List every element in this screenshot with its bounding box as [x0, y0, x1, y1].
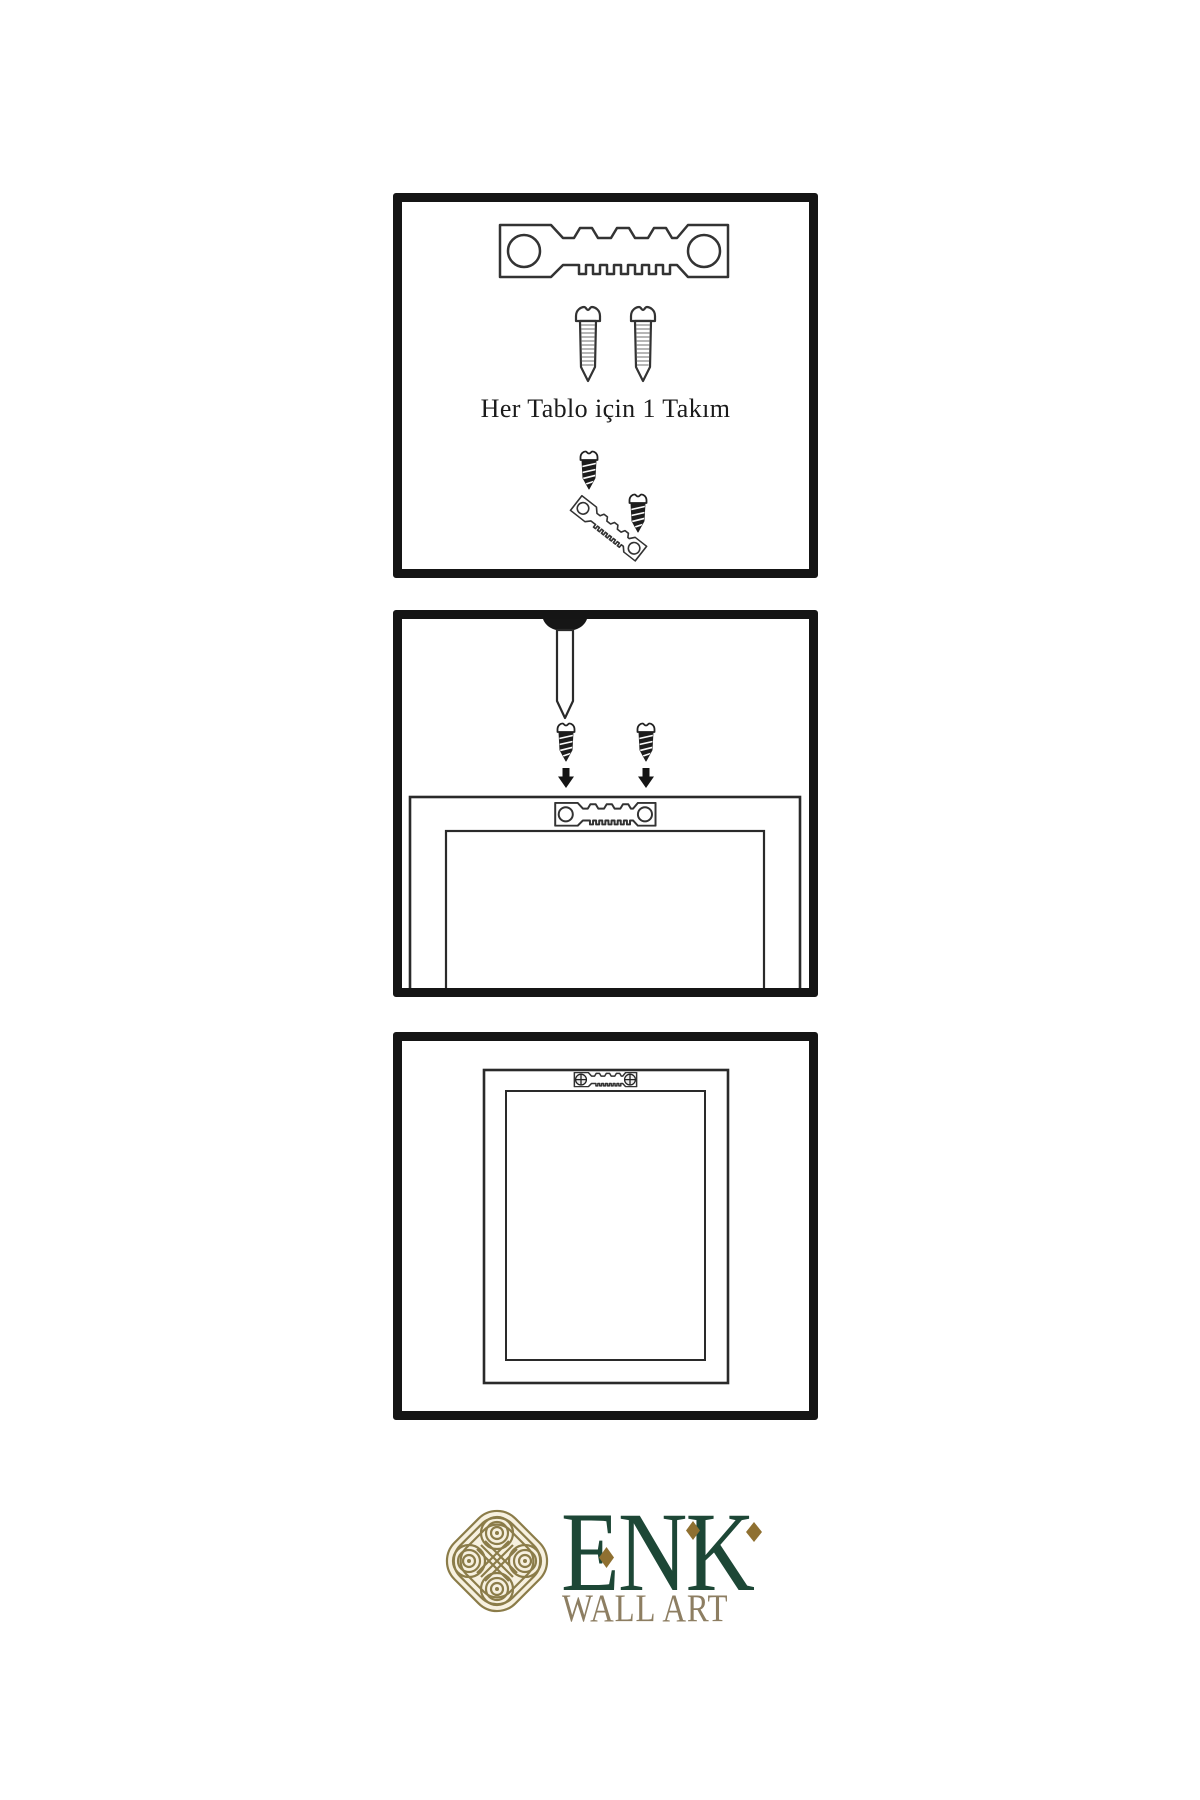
screw-into-hanger-demo-icon — [570, 452, 647, 561]
brand-subtitle: WALL ART — [562, 1589, 728, 1628]
sawtooth-hanger-icon — [555, 803, 655, 826]
down-arrow-icon — [558, 768, 574, 788]
down-arrow-icon — [638, 768, 654, 788]
instruction-panel-attach — [393, 610, 818, 997]
screw-icon — [631, 307, 655, 381]
screw-icon — [637, 724, 655, 762]
nail-icon — [543, 619, 587, 718]
frame-back-icon — [410, 797, 800, 988]
page-root: Her Tablo için 1 Takım — [0, 0, 1200, 1800]
kit-caption: Her Tablo için 1 Takım — [393, 394, 818, 424]
attach-step-illustration — [402, 619, 809, 988]
knot-logo-icon — [438, 1497, 556, 1625]
screw-icon — [576, 307, 600, 381]
kit-contents-illustration — [402, 202, 809, 569]
mounted-frame-illustration — [402, 1041, 809, 1411]
instruction-panel-mounted — [393, 1032, 818, 1420]
frame-back-icon — [484, 1070, 728, 1383]
instruction-panel-kit — [393, 193, 818, 578]
sawtooth-hanger-icon — [500, 225, 728, 277]
screw-icon — [557, 724, 575, 762]
